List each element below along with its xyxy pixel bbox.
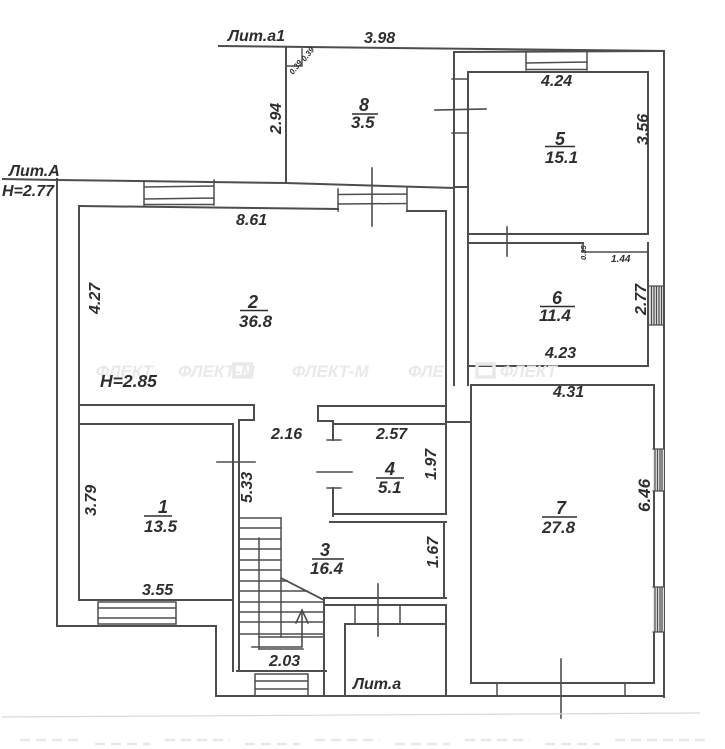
- svg-text:8: 8: [359, 95, 369, 115]
- svg-text:2.03: 2.03: [268, 653, 300, 670]
- svg-text:16.4: 16.4: [310, 559, 344, 578]
- svg-text:1.67: 1.67: [425, 536, 442, 568]
- svg-text:Лит.А: Лит.А: [8, 163, 60, 180]
- svg-text:1.97: 1.97: [423, 448, 440, 480]
- svg-text:2.77: 2.77: [633, 283, 650, 316]
- svg-text:2.16: 2.16: [270, 426, 302, 443]
- svg-text:5.33: 5.33: [239, 472, 256, 503]
- svg-text:1.44: 1.44: [611, 254, 631, 265]
- svg-text:2: 2: [247, 292, 258, 312]
- svg-text:4.24: 4.24: [540, 73, 572, 90]
- svg-text:5.1: 5.1: [378, 478, 402, 497]
- svg-text:6.46: 6.46: [635, 478, 654, 512]
- svg-text:11.4: 11.4: [539, 306, 571, 325]
- svg-text:3: 3: [320, 540, 330, 560]
- svg-text:4.31: 4.31: [552, 384, 584, 401]
- svg-text:ФЛЕКТ-М: ФЛЕКТ-М: [292, 362, 370, 381]
- svg-text:4.23: 4.23: [544, 345, 576, 362]
- svg-text:4: 4: [384, 459, 395, 479]
- svg-text:36.8: 36.8: [239, 312, 273, 331]
- svg-text:27.8: 27.8: [541, 518, 576, 537]
- svg-text:6: 6: [552, 288, 563, 308]
- svg-text:7: 7: [556, 498, 567, 518]
- svg-text:Н=2.85: Н=2.85: [100, 371, 157, 391]
- svg-text:3.56: 3.56: [635, 114, 652, 145]
- svg-text:15.1: 15.1: [545, 148, 578, 167]
- svg-text:3.79: 3.79: [83, 485, 100, 516]
- svg-text:3.5: 3.5: [351, 113, 375, 132]
- svg-text:0.35: 0.35: [579, 245, 588, 260]
- svg-text:ФЛЕКТ: ФЛЕКТ: [500, 362, 559, 381]
- svg-text:Лит.а: Лит.а: [352, 676, 401, 693]
- svg-text:ФЛЕ: ФЛЕ: [408, 362, 445, 381]
- svg-text:2.57: 2.57: [375, 426, 408, 443]
- svg-text:Н=2.77: Н=2.77: [2, 183, 55, 200]
- svg-text:3.55: 3.55: [142, 582, 174, 599]
- svg-text:1: 1: [158, 497, 168, 517]
- svg-text:3.98: 3.98: [364, 30, 395, 47]
- svg-text:4.27: 4.27: [87, 282, 104, 315]
- svg-text:Лит.а1: Лит.а1: [227, 28, 285, 45]
- svg-text:8.61: 8.61: [236, 212, 267, 229]
- svg-text:13.5: 13.5: [144, 517, 178, 536]
- svg-text:2.94: 2.94: [268, 103, 285, 135]
